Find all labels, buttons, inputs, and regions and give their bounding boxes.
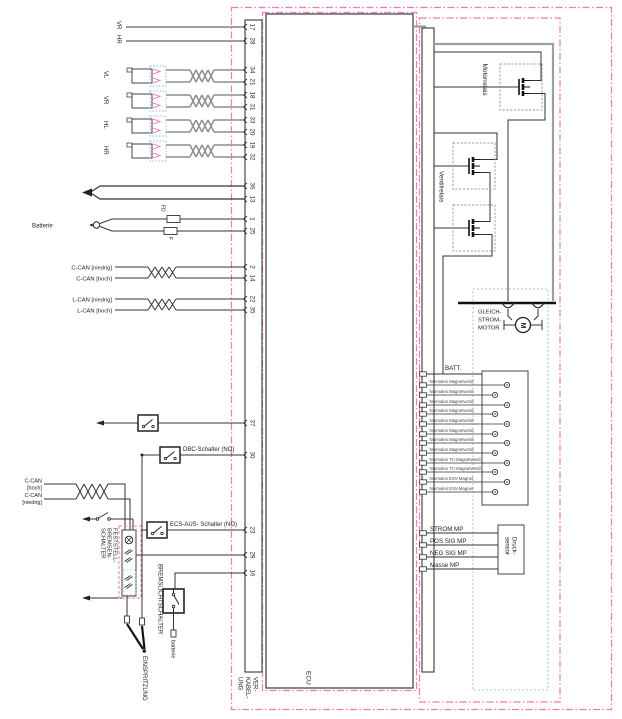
mosfet-icon — [519, 78, 530, 96]
sensor-label: VL — [102, 71, 108, 79]
connector-pin-icon — [125, 616, 130, 623]
mp-label: STROM MP — [430, 526, 463, 533]
connector-pin-icon — [171, 630, 176, 637]
batterie-small-label: batterie — [170, 640, 176, 658]
junction-dot — [143, 649, 147, 653]
pin-label: 2 — [249, 265, 256, 269]
ecs-switch-icon — [147, 522, 167, 538]
harness-label: KABEL- — [244, 677, 250, 698]
l-can-high-label: L-CAN [hoch] — [77, 308, 112, 314]
ecs-switch-label: ECS-AUS- Schalter (NO) — [170, 522, 237, 528]
fuse-label: FD — [160, 205, 166, 212]
sensor-label: HL — [102, 121, 108, 129]
c-can-lower-label: C-CAN — [25, 479, 42, 485]
pin-label: 34 — [249, 67, 256, 74]
c-can-lower-label: [hoch] — [27, 486, 42, 492]
fuse-icon — [164, 228, 177, 235]
sensor-label: VR — [102, 96, 108, 105]
valve-label: Normales Magnetventil — [430, 437, 474, 442]
brake-light-label: BREMSLICHTSCHALTER — [157, 564, 163, 635]
pin-label: 1 — [249, 217, 256, 221]
wheel-label: HR — [115, 35, 121, 44]
dbc-switch-label: DBC-Schalter (NO) — [183, 447, 234, 453]
valve-label: Normales Magnetventil — [430, 428, 474, 433]
harness-label: UNG — [237, 677, 243, 691]
c-can-high-label: C-CAN [hoch] — [76, 276, 112, 282]
mosfet-icon — [469, 157, 480, 175]
dc-motor-label: GLEICH- — [478, 310, 502, 316]
valve-label: Normales Magnetventil — [430, 408, 474, 413]
pin-label: 31 — [249, 104, 256, 111]
motor-relay-label: Motorrelais — [481, 64, 488, 97]
pin-label: 13 — [249, 196, 256, 203]
pin-label: 16 — [249, 570, 256, 577]
dc-motor-label: STROM- — [478, 318, 501, 324]
valve-label: Normales TC-Magnetventil — [430, 466, 481, 471]
valve-block-box — [482, 371, 528, 505]
ecu-box — [266, 14, 413, 688]
injection-label: EINSPRITZUNG — [141, 656, 147, 701]
pin-label: 30 — [249, 452, 256, 459]
pin-label: 21 — [249, 79, 256, 86]
wiring-diagram-svg: VR HR VL VR HL HR Batterie FD F C-CAN [n… — [0, 0, 622, 719]
brake-light-switch — [163, 589, 184, 637]
valve-label: Normales Magnetventil — [430, 418, 474, 423]
battery-terminal-icon — [93, 222, 99, 228]
pin-label: 33 — [249, 117, 256, 124]
ecu-label: ECU — [305, 671, 312, 685]
sensor-label: HR — [102, 146, 108, 155]
fuse-icon — [167, 216, 180, 223]
mosfet-icon — [469, 219, 480, 237]
harness-label: VER- — [252, 677, 258, 691]
mp-label: POS SIG MP — [430, 538, 466, 545]
valve-label: Normales ESV-Magnet — [430, 476, 475, 481]
pin-label: 25 — [249, 228, 256, 235]
pin-label: 14 — [249, 275, 256, 282]
pressure-sensor-label: Druck- — [511, 537, 517, 555]
fuse-label: F — [167, 237, 173, 240]
can-bus-lines — [115, 267, 243, 310]
pin-label: 18 — [249, 92, 256, 99]
pin-label: 19 — [249, 142, 256, 149]
motor-relay — [434, 44, 553, 301]
battery-label: Batterie — [32, 224, 53, 230]
left-arrow-icon — [82, 596, 90, 601]
pressure-sensor-label: sensor — [504, 537, 510, 555]
actuator-boundary — [420, 18, 561, 702]
motor-symbol: M — [519, 323, 526, 329]
valve-label: Normales Magnetventil — [430, 379, 474, 384]
mp-label: Masse MP — [430, 562, 459, 569]
pin-label: 32 — [249, 154, 256, 161]
wheel-direct-wires — [126, 27, 243, 41]
pin-label: 17 — [249, 24, 256, 31]
left-arrow-icon — [82, 517, 90, 522]
pin-label: 35 — [249, 307, 256, 314]
wheel-speed-sensors — [127, 66, 243, 161]
valve-label: Normales Magnetventil — [430, 399, 474, 404]
valve-label: Normales Magnetventil — [430, 447, 474, 452]
pin-label: 20 — [249, 129, 256, 136]
mp-label: NEG SIG MP — [430, 550, 467, 557]
battery-pin-icon — [90, 224, 93, 227]
switches — [96, 415, 243, 618]
parking-brake-switch — [44, 484, 141, 601]
wheel-label: VR — [115, 21, 121, 30]
c-can-lower-label: C-CAN — [25, 493, 42, 499]
junction-dot — [141, 454, 144, 457]
pin-label: 37 — [249, 420, 256, 427]
pin-label: 28 — [249, 38, 256, 45]
wiring-diagram-page: VR HR VL VR HL HR Batterie FD F C-CAN [n… — [0, 0, 622, 719]
parking-brake-label: SCHALTER — [100, 528, 106, 559]
pin-label: 23 — [249, 527, 256, 534]
stop-light-feed-wires — [82, 186, 243, 199]
actuator-connector-strip — [422, 28, 434, 672]
valve-label: Normales Magnetventil — [430, 389, 474, 394]
l-can-low-label: L-CAN [niedrig] — [72, 297, 112, 303]
connector-pin-icon — [140, 618, 145, 625]
batt-label: BATT. — [445, 365, 462, 372]
switch-box-icon — [138, 415, 158, 431]
valve-label: Normales ESV-Magnet — [430, 486, 475, 491]
valve-relay-label: Ventilrelais — [438, 171, 445, 203]
pin-label: 22 — [249, 296, 256, 303]
injection-node — [125, 596, 147, 653]
left-arrow-icon — [96, 421, 104, 426]
dbc-switch-icon — [160, 447, 180, 463]
left-arrow-icon — [82, 189, 92, 197]
battery-supply — [90, 216, 243, 235]
c-can-lower-label: [niedrig] — [22, 500, 42, 506]
pin-label: 36 — [249, 183, 256, 190]
pin-label: 29 — [249, 552, 256, 559]
c-can-low-label: C-CAN [niedrig] — [71, 265, 112, 271]
valve-label: Normales TC-Magnetventil — [430, 457, 481, 462]
dc-motor-label: MOTOR — [478, 326, 499, 332]
